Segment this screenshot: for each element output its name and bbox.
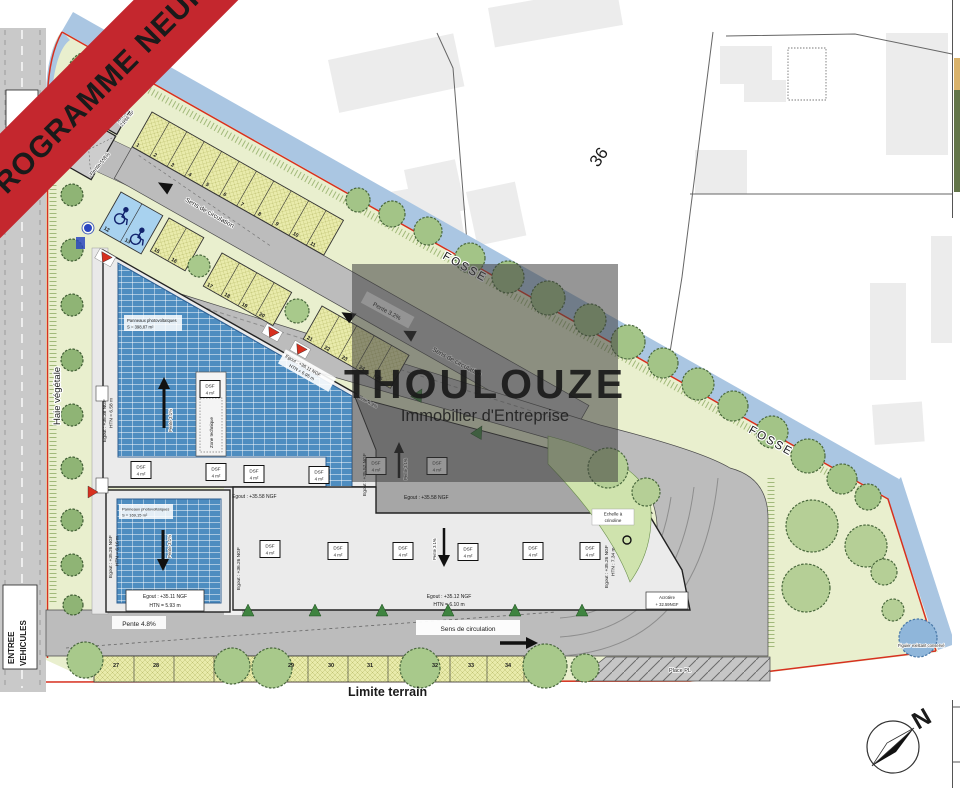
- drawing-element: [84, 224, 93, 233]
- pv-label-small: Panneaux photovoltaïques S = 169,15 m²: [119, 504, 173, 519]
- tree-icon: [346, 188, 370, 212]
- tree-icon: [252, 648, 292, 688]
- drawing-element: HTN = 5.93 m: [149, 603, 180, 609]
- tree-icon: [61, 509, 83, 531]
- drawing-element: [96, 478, 108, 493]
- dsf-area-label: 4 m²: [586, 553, 595, 558]
- drawing-element: [931, 236, 953, 343]
- dsf-area-label: 4 m²: [334, 553, 343, 558]
- dsf-box: DSF4 m²: [393, 543, 413, 560]
- drawing-element: [123, 207, 128, 212]
- drawing-element: Zone technique: [209, 416, 214, 448]
- drawing-element: [94, 656, 560, 682]
- drawing-element: Egout : +35.58 NGF: [404, 495, 449, 501]
- parking-row-bottom: [94, 656, 560, 682]
- dsf-area-label: 4 m²: [464, 554, 473, 559]
- figuier-label: Figuier existant conservé: [898, 643, 945, 648]
- dsf-label: DSF: [398, 546, 407, 551]
- egout-e6-box: Egout : +35.11 NGFHTN = 5.93 m: [126, 590, 204, 611]
- watermark-subtitle: Immobilier d'Entreprise: [401, 407, 569, 425]
- dsf-box: DSF4 m²: [131, 462, 151, 479]
- dsf-box: DSF4 m²: [206, 464, 226, 481]
- dsf-label: DSF: [463, 547, 472, 552]
- parking-spot-number: 32: [432, 663, 438, 669]
- dsf-area-label: 4 m²: [206, 391, 215, 396]
- dsf-label: DSF: [333, 546, 342, 551]
- tree-icon: [827, 464, 857, 494]
- fig-tree-icon: [899, 619, 937, 657]
- drawing-element: [872, 402, 925, 445]
- right-edge-strip: [952, 0, 960, 788]
- dsf-label: DSF: [265, 544, 274, 549]
- tree-icon: [63, 595, 83, 615]
- drawing-element: [96, 386, 108, 401]
- drawing-element: [720, 46, 772, 84]
- parking-spot-number: 29: [288, 663, 294, 669]
- tree-icon: [571, 654, 599, 682]
- drawing-element: Egout : +35.11 NGF: [143, 594, 187, 600]
- dsf-box: DSF4 m²: [328, 543, 348, 560]
- drawing-element: S = 169,15 m²: [122, 513, 148, 518]
- drawing-element: Egout : +35.58 NGF: [232, 494, 277, 500]
- entree-vehicules-sign: ENTREE VEHICULES: [3, 585, 37, 669]
- place-pl-label: Place PL: [669, 668, 691, 674]
- dsf-label: DSF: [528, 546, 537, 551]
- tree-icon: [61, 349, 83, 371]
- dsf-area-label: 4 m²: [250, 476, 259, 481]
- tree-icon: [648, 348, 678, 378]
- drawing-element: [788, 48, 826, 100]
- drawing-element: [954, 58, 960, 90]
- site-plan-page: 36 Sens de circulation: [0, 0, 960, 788]
- drawing-element: Panneaux photovoltaïques: [127, 318, 177, 323]
- parking-spot-number: 33: [468, 663, 474, 669]
- tree-icon: [871, 559, 897, 585]
- tree-icon: [523, 644, 567, 688]
- watermark: THOULOUZE Immobilier d'Entreprise: [344, 264, 626, 482]
- drawing-element: [139, 228, 144, 233]
- parking-spot-number: 28: [153, 663, 159, 669]
- dsf-box: DSF4 m²: [200, 381, 220, 398]
- drawing-element: Egout : +36.26 NGF: [236, 547, 242, 590]
- dsf-label: DSF: [585, 546, 594, 551]
- drawing-element: Echelle à: [604, 512, 623, 517]
- drawing-element: Panneaux photovoltaïques: [122, 507, 169, 512]
- site-plan-drawing: 36 Sens de circulation: [0, 0, 960, 788]
- tree-icon: [682, 368, 714, 400]
- dsf-label: DSF: [136, 465, 145, 470]
- drawing-element: HTN = 6.58 m: [109, 398, 115, 428]
- dsf-label: DSF: [249, 469, 258, 474]
- dsf-area-label: 4 m²: [529, 553, 538, 558]
- drawing-element: [76, 237, 85, 249]
- tree-icon: [61, 294, 83, 316]
- tree-icon: [61, 404, 83, 426]
- drawing-element: Egout : +35.12 NGF: [427, 594, 472, 600]
- parking-spot-number: 31: [367, 663, 373, 669]
- limite-terrain-label: Limite terrain: [348, 685, 427, 699]
- dsf-label: DSF: [205, 384, 214, 389]
- tree-icon: [188, 255, 210, 277]
- drawing-element: [870, 283, 906, 380]
- drawing-element: S = 398,87 m²: [127, 325, 154, 330]
- drawing-element: Pente 3.1%: [432, 538, 437, 560]
- pente-48-label: Pente 4.8%: [112, 616, 166, 629]
- drawing-element: Egout : +35.38 NGF: [102, 399, 108, 442]
- pv-label-main: Panneaux photovoltaïques S = 398,87 m²: [124, 315, 182, 331]
- drawing-element: HTN = 6.10 m: [433, 602, 464, 608]
- tree-icon: [855, 484, 881, 510]
- drawing-element: Acrotère: [659, 595, 675, 600]
- drawing-element: Sens de circulation: [441, 626, 496, 633]
- parking-spot-number: 34: [505, 663, 512, 669]
- dsf-area-label: 4 m²: [399, 553, 408, 558]
- dsf-box: DSF4 m²: [458, 544, 478, 561]
- tree-icon: [61, 457, 83, 479]
- parking-spot-number: 30: [328, 663, 334, 669]
- dsf-box: DSF4 m²: [523, 543, 543, 560]
- dsf-area-label: 4 m²: [212, 474, 221, 479]
- tree-icon: [791, 439, 825, 473]
- dsf-box: DSF4 m²: [260, 541, 280, 558]
- tree-icon: [782, 564, 830, 612]
- drawing-element: HTN : 7.34 m: [611, 547, 617, 576]
- acrotere-label: Acrotère + 32.59NGF: [646, 592, 688, 609]
- tree-icon: [61, 184, 83, 206]
- drawing-element: Pente 4.8%: [122, 621, 156, 628]
- dsf-area-label: 4 m²: [315, 477, 324, 482]
- dsf-label: DSF: [314, 470, 323, 475]
- north-compass: [867, 721, 919, 773]
- drawing-element: VEHICULES: [19, 620, 28, 666]
- parking-spot-number: 27: [113, 663, 119, 669]
- tree-icon: [214, 648, 250, 684]
- dsf-box: DSF4 m²: [580, 543, 600, 560]
- tree-icon: [786, 500, 838, 552]
- tree-icon: [632, 478, 660, 506]
- drawing-element: [954, 90, 960, 192]
- drawing-element: HTN = 6.16 m: [115, 536, 121, 566]
- drawing-element: [744, 80, 786, 102]
- dsf-label: DSF: [211, 467, 220, 472]
- tree-icon: [67, 642, 103, 678]
- drawing-element: Pente 3.1%: [168, 409, 173, 432]
- dsf-box: DSF4 m²: [309, 467, 329, 484]
- tree-icon: [285, 299, 309, 323]
- tree-icon: [882, 599, 904, 621]
- dsf-box: DSF4 m²: [244, 466, 264, 483]
- dsf-area-label: 4 m²: [266, 551, 275, 556]
- dsf-area-label: 4 m²: [137, 472, 146, 477]
- tree-icon: [414, 217, 442, 245]
- drawing-element: Egout : +35.26 NGF: [108, 535, 114, 578]
- tree-icon: [379, 201, 405, 227]
- drawing-element: Egout : +36.26 NGF: [236, 547, 242, 590]
- watermark-title: THOULOUZE: [344, 361, 626, 407]
- drawing-element: [695, 150, 747, 194]
- drawing-element: Pente 3.1%: [167, 535, 172, 558]
- drawing-element: + 32.59NGF: [656, 602, 679, 607]
- drawing-element: Egout : +35.26 NGF: [604, 545, 610, 588]
- tree-icon: [718, 391, 748, 421]
- haie-vegetale-label: Haie végétale: [52, 367, 63, 425]
- drawing-element: crinoline: [605, 518, 622, 523]
- drawing-element: ENTREE: [7, 631, 16, 664]
- tree-icon: [61, 554, 83, 576]
